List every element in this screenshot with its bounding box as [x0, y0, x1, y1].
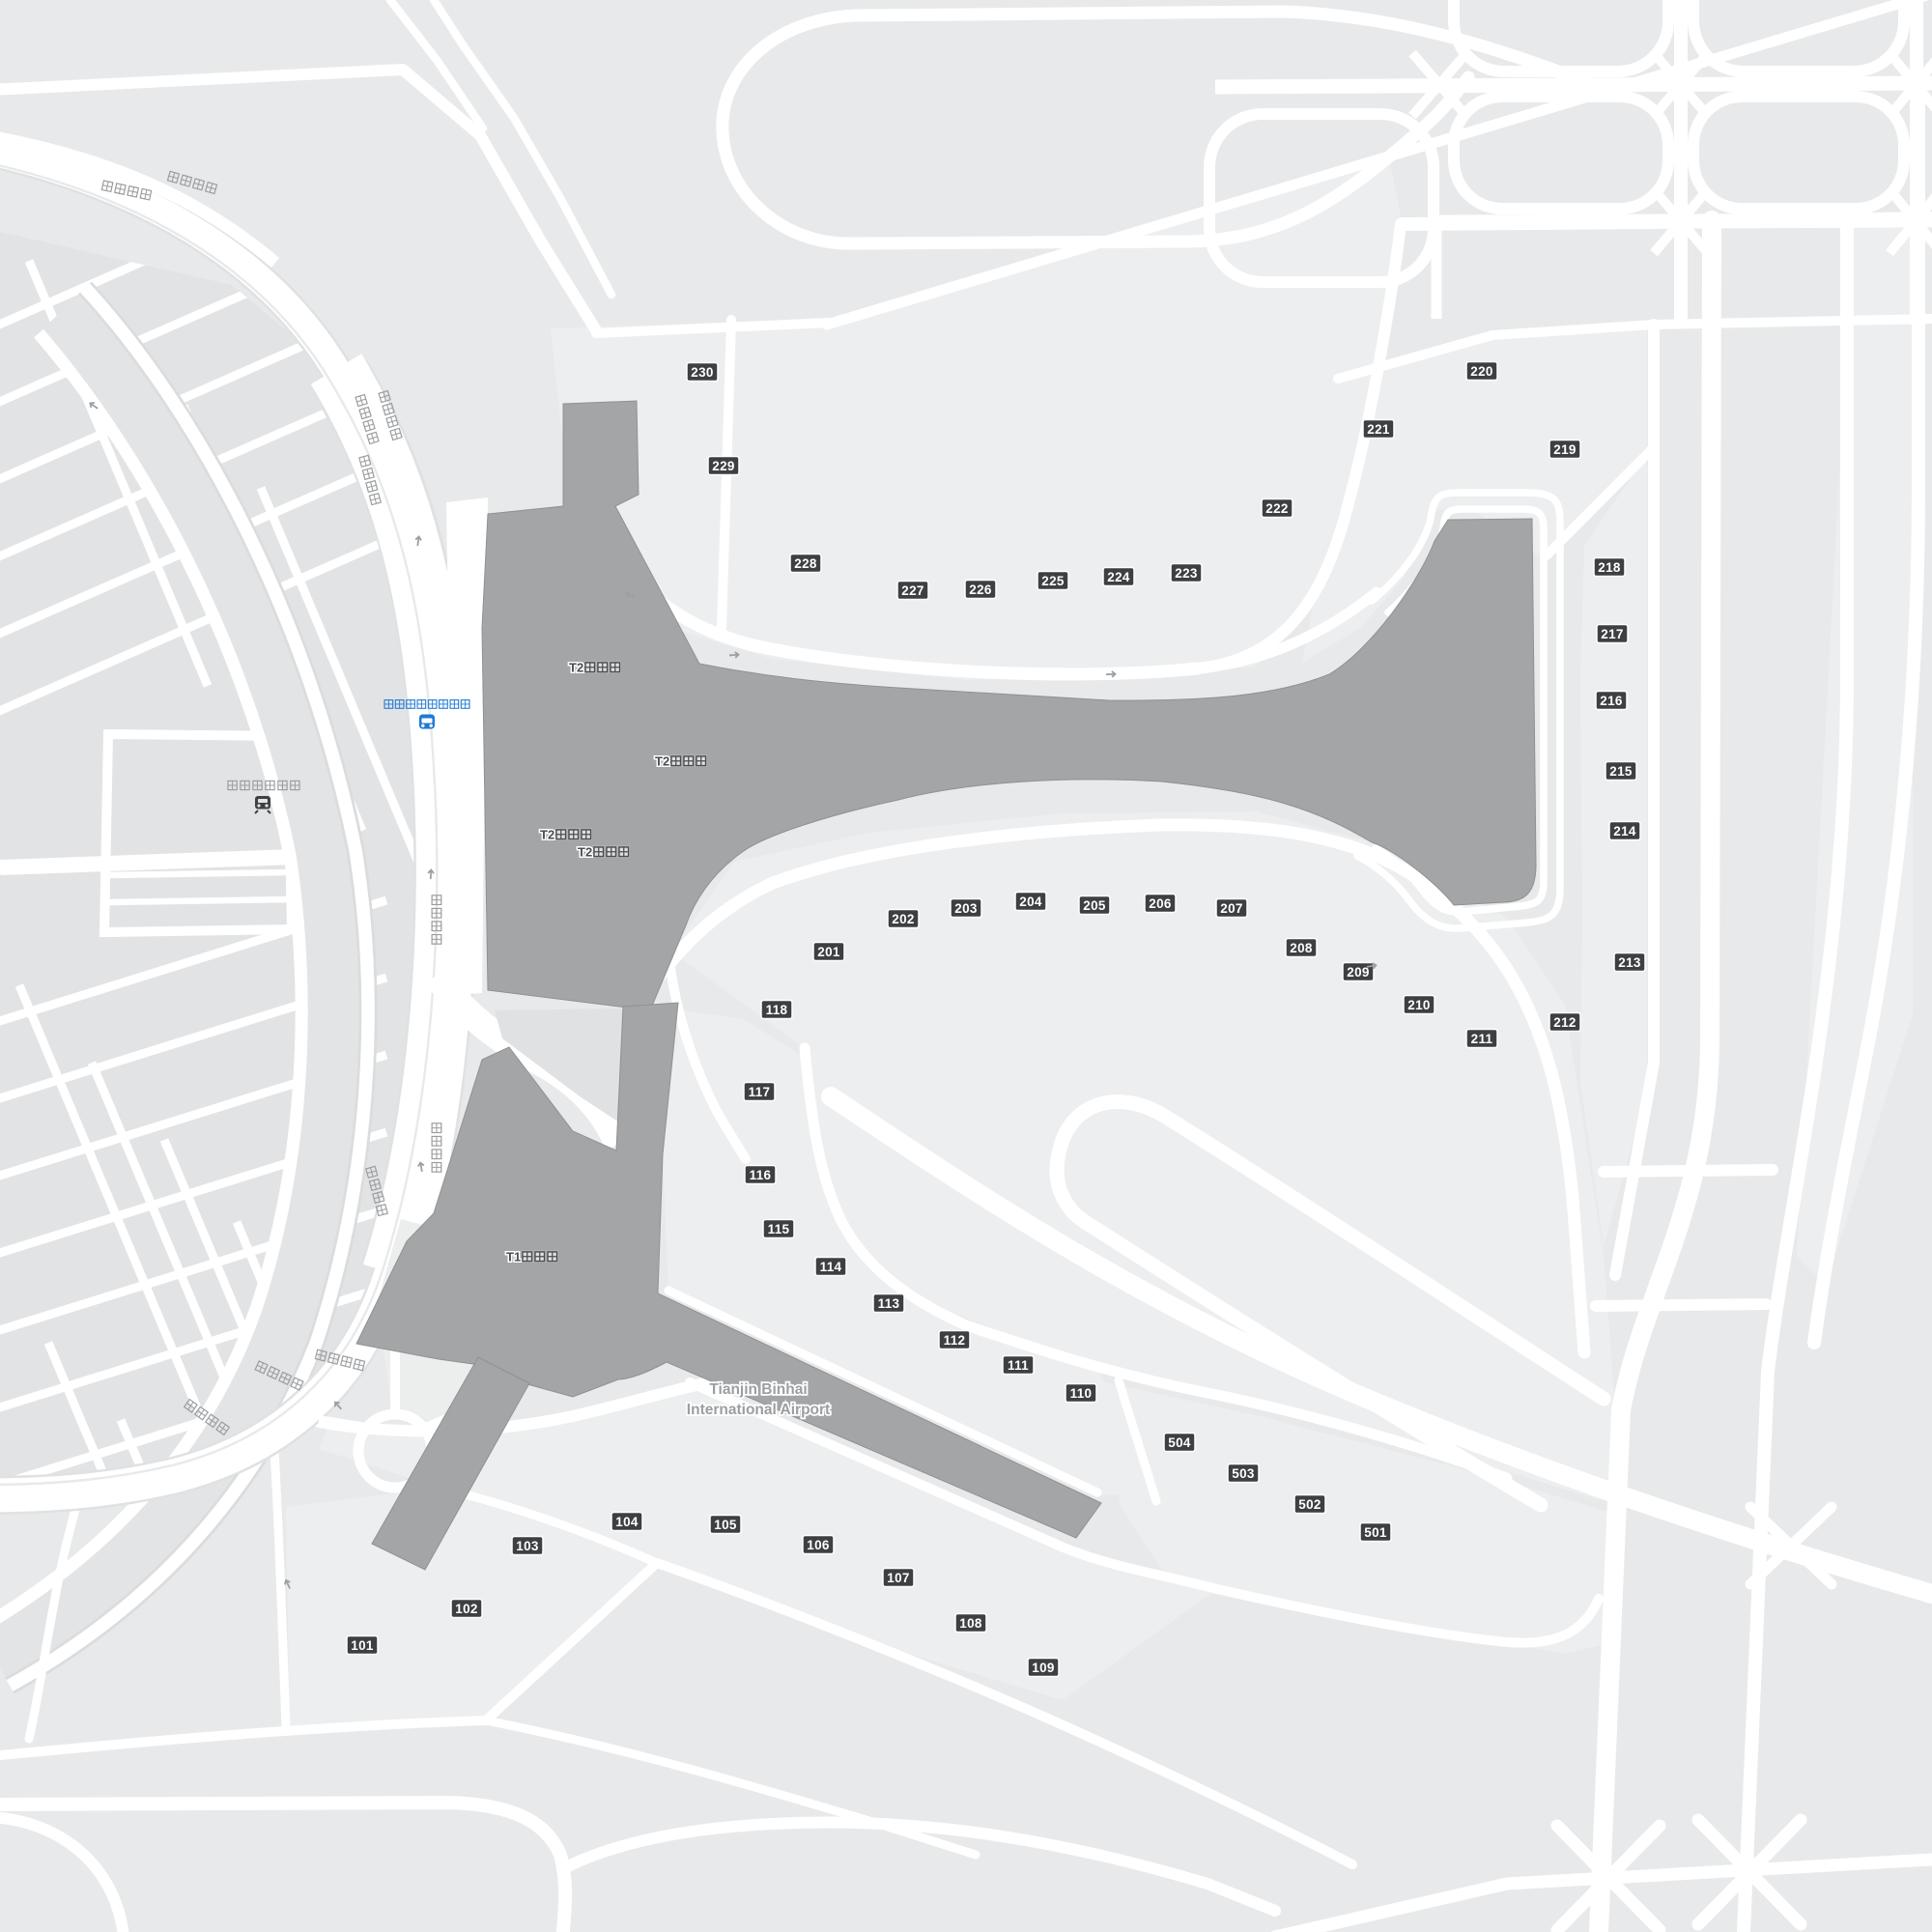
svg-text:201: 201 [817, 945, 840, 959]
svg-text:501: 501 [1364, 1525, 1387, 1540]
svg-text:104: 104 [615, 1515, 639, 1529]
svg-text:230: 230 [691, 365, 713, 380]
svg-text:214: 214 [1613, 824, 1636, 838]
svg-text:110: 110 [1070, 1386, 1093, 1401]
svg-text:207: 207 [1220, 901, 1242, 916]
svg-text:503: 503 [1232, 1466, 1255, 1481]
svg-text:T2: T2 [569, 661, 583, 675]
svg-text:204: 204 [1019, 895, 1042, 909]
svg-text:215: 215 [1609, 764, 1633, 779]
svg-text:229: 229 [712, 459, 734, 473]
svg-text:221: 221 [1367, 422, 1390, 437]
svg-text:228: 228 [794, 556, 817, 571]
svg-text:222: 222 [1265, 501, 1288, 516]
svg-text:International Airport: International Airport [687, 1402, 830, 1418]
svg-text:202: 202 [892, 912, 914, 926]
svg-text:101: 101 [351, 1638, 374, 1653]
svg-text:T2: T2 [540, 828, 554, 842]
svg-text:102: 102 [455, 1602, 477, 1616]
svg-text:217: 217 [1601, 627, 1623, 641]
svg-text:220: 220 [1470, 364, 1492, 379]
svg-text:208: 208 [1290, 941, 1313, 955]
svg-text:117: 117 [749, 1085, 771, 1099]
svg-text:224: 224 [1107, 570, 1130, 584]
svg-text:105: 105 [714, 1518, 737, 1532]
svg-text:108: 108 [959, 1616, 982, 1631]
svg-text:T2: T2 [578, 845, 592, 860]
svg-text:226: 226 [969, 582, 992, 597]
svg-text:502: 502 [1298, 1497, 1321, 1512]
svg-text:T2: T2 [655, 754, 669, 769]
svg-text:216: 216 [1600, 694, 1623, 708]
svg-text:115: 115 [768, 1222, 790, 1236]
svg-text:203: 203 [954, 901, 978, 916]
svg-text:223: 223 [1175, 566, 1198, 581]
svg-text:227: 227 [901, 583, 923, 598]
svg-text:107: 107 [887, 1571, 909, 1585]
svg-text:206: 206 [1149, 896, 1172, 911]
svg-text:211: 211 [1471, 1032, 1493, 1046]
svg-text:114: 114 [820, 1260, 842, 1274]
svg-text:112: 112 [944, 1333, 966, 1348]
svg-text:210: 210 [1407, 998, 1430, 1012]
svg-text:504: 504 [1168, 1435, 1191, 1450]
svg-text:111: 111 [1008, 1358, 1029, 1373]
svg-text:103: 103 [516, 1539, 539, 1553]
svg-text:205: 205 [1083, 898, 1106, 913]
svg-text:225: 225 [1041, 574, 1065, 588]
svg-text:213: 213 [1618, 955, 1641, 970]
svg-text:219: 219 [1553, 442, 1576, 457]
svg-text:218: 218 [1598, 560, 1621, 575]
svg-text:118: 118 [766, 1003, 788, 1017]
svg-text:116: 116 [750, 1168, 772, 1182]
svg-text:106: 106 [807, 1538, 830, 1552]
svg-text:113: 113 [878, 1296, 900, 1311]
svg-text:209: 209 [1347, 965, 1369, 980]
svg-text:109: 109 [1032, 1661, 1054, 1675]
svg-text:T1: T1 [506, 1250, 521, 1264]
svg-text:Tianjin Binhai: Tianjin Binhai [709, 1381, 807, 1398]
svg-text:212: 212 [1553, 1015, 1576, 1030]
